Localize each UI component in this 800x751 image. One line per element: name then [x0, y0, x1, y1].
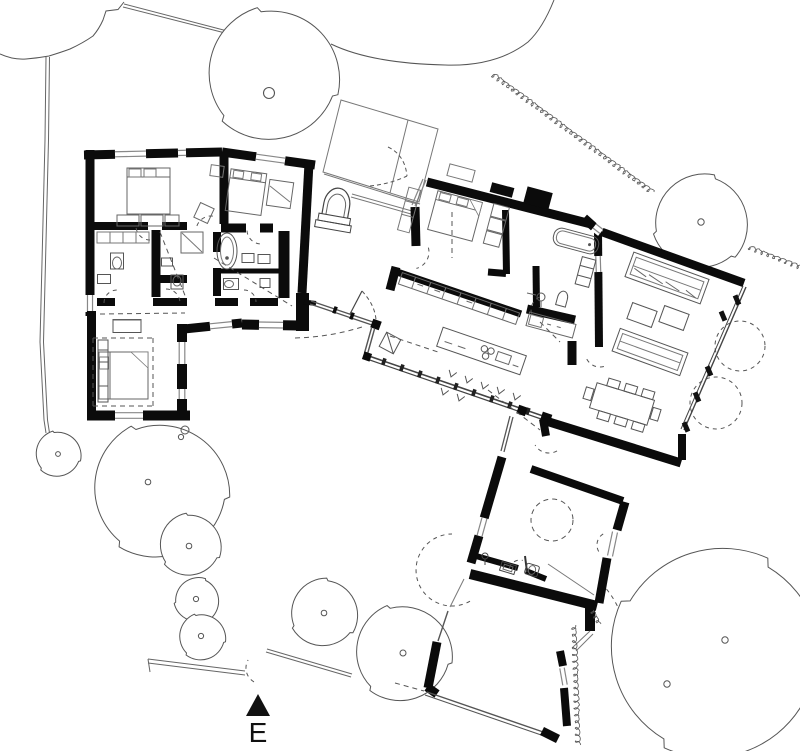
- svg-text:E: E: [249, 717, 268, 748]
